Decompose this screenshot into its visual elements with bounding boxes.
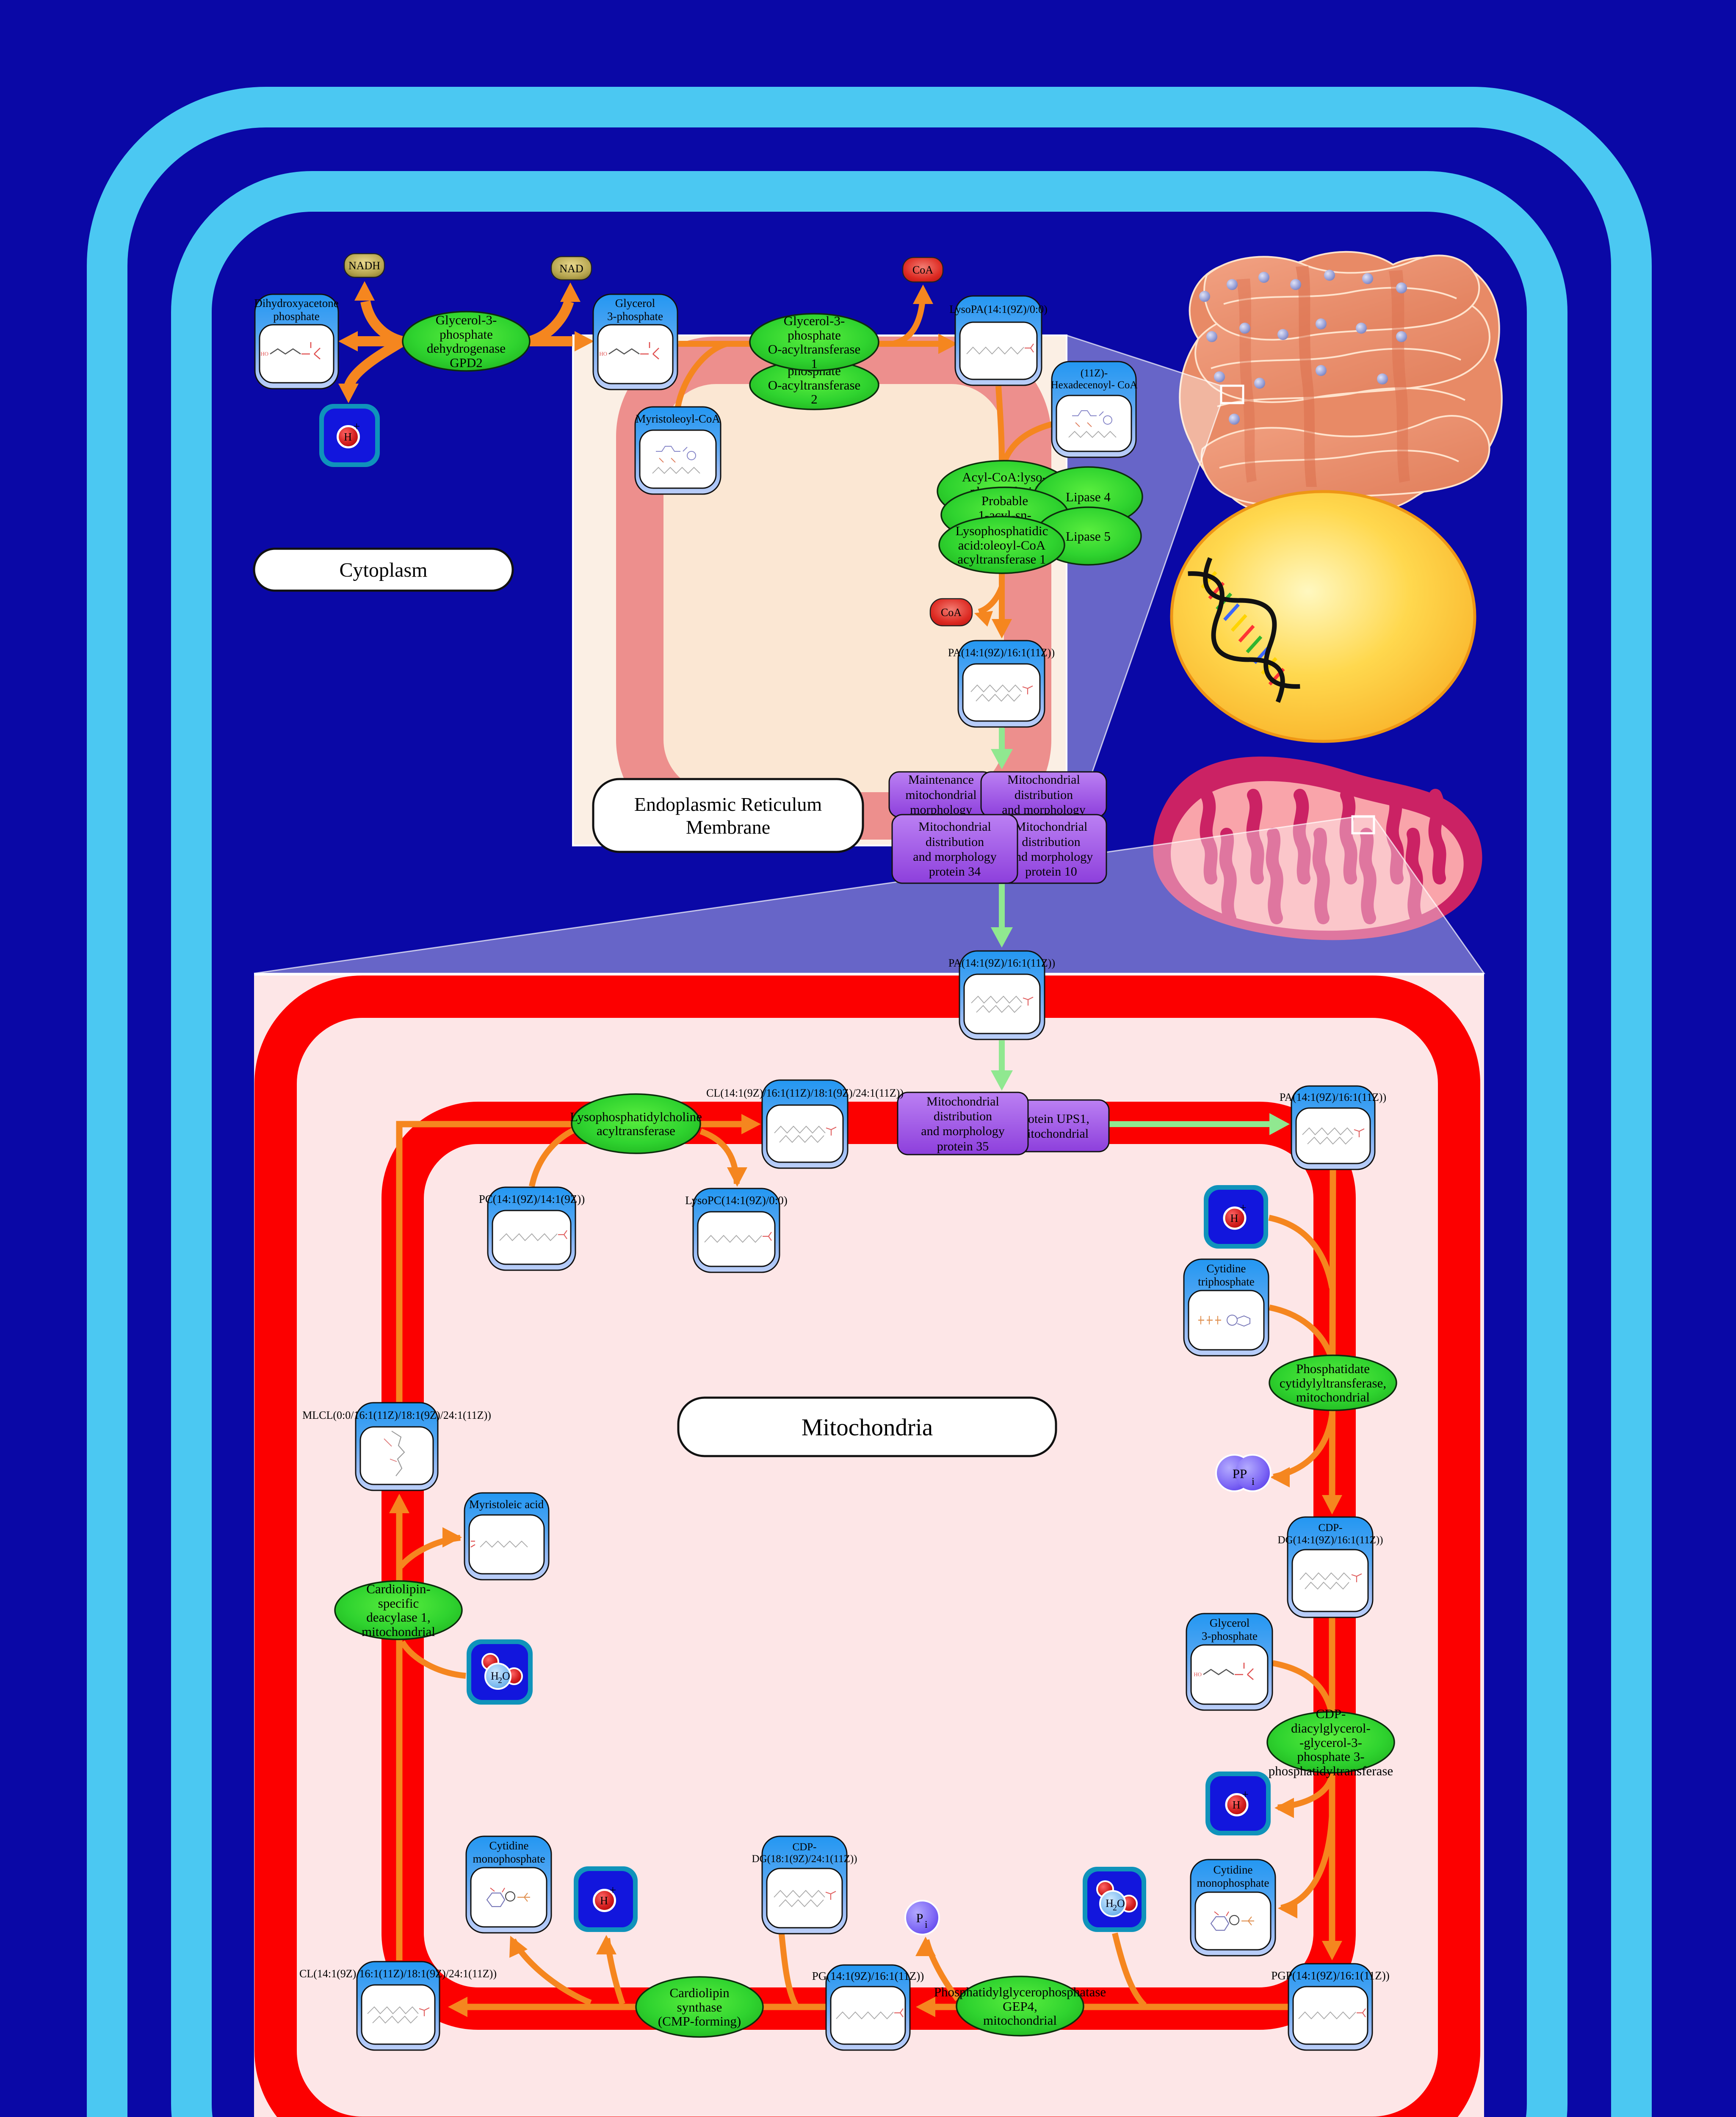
svg-text:monophosphate: monophosphate (473, 1852, 545, 1865)
svg-text:Cardiolipin: Cardiolipin (669, 1985, 730, 2000)
svg-text:PA(14:1(9Z)/16:1(11Z)): PA(14:1(9Z)/16:1(11Z)) (948, 647, 1055, 659)
svg-text:PG(14:1(9Z)/16:1(11Z)): PG(14:1(9Z)/16:1(11Z)) (812, 1970, 924, 1982)
svg-text:+: + (1240, 1202, 1247, 1215)
svg-text:H: H (1233, 1799, 1241, 1811)
svg-text:CDP-: CDP- (1316, 1706, 1346, 1721)
svg-text:HO: HO (599, 351, 607, 357)
svg-text:Cytidine: Cytidine (489, 1839, 529, 1852)
svg-text:acyltransferase: acyltransferase (597, 1123, 675, 1138)
svg-text:CDP-: CDP- (1319, 1522, 1343, 1534)
svg-text:O-acyltransferase: O-acyltransferase (768, 342, 861, 357)
svg-text:H: H (1230, 1212, 1238, 1224)
svg-text:diacylglycerol-: diacylglycerol- (1291, 1721, 1371, 1736)
svg-text:mitochondrial: mitochondrial (362, 1624, 435, 1639)
svg-text:DG(14:1(9Z)/16:1(11Z)): DG(14:1(9Z)/16:1(11Z)) (1277, 1534, 1383, 1546)
svg-text:+: + (1242, 1788, 1249, 1802)
svg-text:(11Z)-: (11Z)- (1081, 368, 1108, 379)
svg-text:GPD2: GPD2 (450, 355, 483, 370)
svg-text:phosphatidyltransferase: phosphatidyltransferase (1269, 1763, 1393, 1778)
svg-text:phosphate: phosphate (440, 327, 493, 342)
svg-text:mitochondrial: mitochondrial (983, 2013, 1057, 2028)
svg-text:PA(14:1(9Z)/16:1(11Z)): PA(14:1(9Z)/16:1(11Z)) (948, 957, 1055, 969)
svg-text:1: 1 (811, 356, 818, 371)
svg-text:protein 10: protein 10 (1025, 865, 1077, 879)
svg-text:O: O (502, 1670, 510, 1682)
svg-text:Glycerol: Glycerol (1210, 1617, 1249, 1629)
svg-text:Probable: Probable (981, 493, 1028, 508)
svg-text:LysoPC(14:1(9Z)/0:0): LysoPC(14:1(9Z)/0:0) (685, 1194, 788, 1207)
svg-text:Acyl-CoA:lyso-: Acyl-CoA:lyso- (962, 470, 1047, 484)
svg-text:Glycerol-3-: Glycerol-3- (784, 313, 845, 328)
svg-text:phosphate: phosphate (273, 310, 319, 323)
svg-text:synthase: synthase (677, 2000, 722, 2015)
svg-text:(CMP-forming): (CMP-forming) (658, 2014, 741, 2029)
svg-text:HO: HO (260, 351, 268, 357)
svg-text:DG(18:1(9Z)/24:1(11Z)): DG(18:1(9Z)/24:1(11Z)) (752, 1853, 857, 1865)
svg-text:Mitochondrial: Mitochondrial (1015, 820, 1088, 834)
svg-text:dehydrogenase: dehydrogenase (427, 341, 506, 356)
svg-text:Hexadecenoyl- CoA: Hexadecenoyl- CoA (1051, 379, 1138, 391)
svg-text:HO: HO (1194, 1671, 1202, 1678)
svg-text:3-phosphate: 3-phosphate (607, 310, 663, 323)
svg-text:Mitochondrial: Mitochondrial (918, 820, 991, 834)
svg-text:and morphology: and morphology (921, 1124, 1004, 1138)
svg-text:protein 34: protein 34 (929, 865, 981, 879)
svg-text:PP: PP (1233, 1466, 1247, 1481)
svg-text:Cytoplasm: Cytoplasm (339, 559, 427, 581)
svg-text:O: O (1117, 1897, 1125, 1910)
svg-text:Endoplasmic Reticulum: Endoplasmic Reticulum (634, 793, 822, 815)
svg-text:i: i (925, 1919, 928, 1930)
svg-text:protein 35: protein 35 (937, 1139, 989, 1153)
svg-text:2: 2 (498, 1676, 502, 1685)
svg-text:Mitochondrial: Mitochondrial (1007, 773, 1080, 787)
svg-text:2: 2 (1113, 1903, 1117, 1912)
svg-text:H: H (600, 1895, 608, 1907)
svg-text:CL(14:1(9Z)/16:1(11Z)/18:1(9Z): CL(14:1(9Z)/16:1(11Z)/18:1(9Z)/24:1(11Z)… (706, 1087, 904, 1099)
svg-text:Lipase 4: Lipase 4 (1066, 489, 1111, 504)
svg-text:3-phosphate: 3-phosphate (1202, 1630, 1258, 1642)
svg-text:Glycerol-3-: Glycerol-3- (436, 312, 497, 327)
svg-text:distribution: distribution (1015, 788, 1073, 802)
svg-text:Lysophosphatidylcholine: Lysophosphatidylcholine (570, 1109, 702, 1124)
svg-text:GEP4,: GEP4, (1003, 1999, 1037, 2014)
svg-text:acid:oleoyl-CoA: acid:oleoyl-CoA (958, 538, 1046, 553)
svg-text:PA(14:1(9Z)/16:1(11Z)): PA(14:1(9Z)/16:1(11Z)) (1280, 1091, 1386, 1103)
svg-text:PC(14:1(9Z)/14:1(9Z)): PC(14:1(9Z)/14:1(9Z)) (479, 1193, 585, 1205)
svg-text:NAD: NAD (559, 263, 583, 275)
svg-text:Cardiolipin-: Cardiolipin- (366, 1581, 431, 1596)
svg-text:deacylase 1,: deacylase 1, (366, 1610, 430, 1625)
svg-text:Maintenance: Maintenance (908, 773, 974, 787)
svg-text:Cytidine: Cytidine (1207, 1262, 1246, 1275)
svg-text:+: + (610, 1884, 616, 1897)
svg-text:distribution: distribution (1022, 835, 1080, 849)
svg-text:O-acyltransferase: O-acyltransferase (768, 378, 861, 392)
svg-text:phosphate 3-: phosphate 3- (1297, 1749, 1364, 1764)
svg-text:Phosphatidate: Phosphatidate (1296, 1361, 1370, 1376)
svg-text:P: P (916, 1911, 923, 1925)
svg-text:2: 2 (811, 392, 818, 406)
svg-text:Phosphatidylglycerophosphatase: Phosphatidylglycerophosphatase (934, 1984, 1106, 1999)
svg-text:monophosphate: monophosphate (1197, 1877, 1269, 1889)
svg-text:Mitochondria: Mitochondria (802, 1414, 933, 1441)
svg-text:Membrane: Membrane (686, 816, 770, 838)
svg-text:-glycerol-3-: -glycerol-3- (1299, 1735, 1362, 1750)
svg-text:cytidylyltransferase,: cytidylyltransferase, (1280, 1376, 1386, 1390)
svg-text:i: i (1252, 1476, 1255, 1487)
svg-text:specific: specific (378, 1596, 419, 1611)
svg-text:Lipase 5: Lipase 5 (1066, 529, 1111, 544)
svg-text:Dihydroxyacetone: Dihydroxyacetone (254, 297, 338, 310)
svg-text:mitochondrial: mitochondrial (1296, 1390, 1370, 1404)
svg-text:Mitochondrial: Mitochondrial (926, 1094, 999, 1108)
svg-text:PGP(14:1(9Z)/16:1(11Z)): PGP(14:1(9Z)/16:1(11Z)) (1271, 1969, 1389, 1982)
svg-text:H: H (344, 431, 352, 443)
svg-text:Cytidine: Cytidine (1214, 1863, 1253, 1876)
svg-text:distribution: distribution (926, 835, 984, 849)
svg-text:LysoPA(14:1(9Z)/0:0): LysoPA(14:1(9Z)/0:0) (949, 303, 1048, 315)
svg-text:CoA: CoA (941, 606, 962, 619)
svg-text:triphosphate: triphosphate (1198, 1275, 1254, 1288)
svg-text:MLCL(0:0/16:1(11Z)/18:1(9Z)/24: MLCL(0:0/16:1(11Z)/18:1(9Z)/24:1(11Z)) (302, 1409, 491, 1421)
svg-text:and morphology: and morphology (1009, 850, 1093, 864)
svg-text:CoA: CoA (912, 264, 933, 276)
svg-text:CL(14:1(9Z)/16:1(11Z)/18:1(9Z): CL(14:1(9Z)/16:1(11Z)/18:1(9Z)/24:1(11Z)… (299, 1968, 497, 1980)
svg-text:acyltransferase 1: acyltransferase 1 (957, 552, 1046, 567)
svg-text:NADH: NADH (348, 260, 380, 272)
svg-text:Myristoleoyl-CoA: Myristoleoyl-CoA (636, 412, 720, 425)
svg-text:distribution: distribution (934, 1109, 992, 1123)
svg-text:Myristoleic acid: Myristoleic acid (469, 1498, 544, 1511)
svg-text:and morphology: and morphology (913, 850, 996, 864)
svg-text:+: + (354, 420, 360, 434)
svg-text:mitochondrial: mitochondrial (905, 788, 976, 802)
svg-text:Glycerol: Glycerol (615, 297, 655, 310)
svg-text:CDP-: CDP- (793, 1841, 817, 1853)
svg-text:Lysophosphatidic: Lysophosphatidic (956, 523, 1048, 538)
svg-text:phosphate: phosphate (788, 328, 841, 343)
